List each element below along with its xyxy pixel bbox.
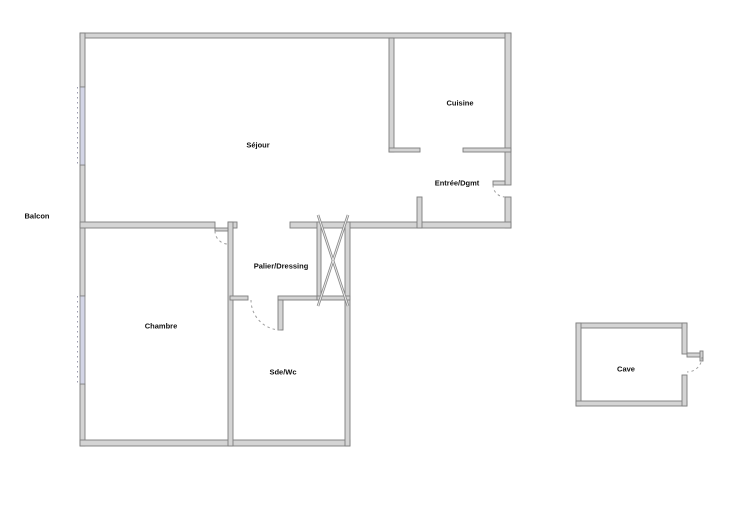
- left-wall-lower: [80, 384, 85, 446]
- shaft-cross-icon: [318, 215, 348, 306]
- room-label-chambre: Chambre: [145, 322, 178, 331]
- left-wall-upper: [80, 33, 85, 87]
- right-wall-upper: [505, 33, 511, 185]
- cave-right-wall-upper: [682, 323, 687, 354]
- left-wall-middle: [80, 165, 85, 296]
- doors: [215, 181, 505, 330]
- wall-palier-bottom-right: [278, 296, 317, 300]
- floor-plan: Balcon Séjour Cuisine Entrée/Dgmt Palier…: [0, 0, 753, 509]
- room-label-entree: Entrée/Dgmt: [435, 179, 480, 188]
- room-label-palier: Palier/Dressing: [254, 262, 309, 271]
- wall-cuisine-vertical: [389, 38, 394, 152]
- wall-sejour-chambre: [80, 222, 215, 228]
- floor-plan-canvas: [0, 0, 753, 509]
- cave-walls: [576, 323, 703, 406]
- wall-entree-stub: [417, 197, 422, 228]
- apartment-outer-walls: [80, 33, 511, 446]
- room-label-sde: Sde/Wc: [269, 368, 296, 377]
- cave-door-handle-tick-icon: [700, 351, 703, 361]
- shaft-left-wall: [317, 222, 321, 300]
- cave-bottom-wall: [576, 401, 687, 406]
- cave-top-wall: [576, 323, 687, 328]
- wall-cuisine-bottom-right: [463, 148, 511, 152]
- wall-sde-right: [345, 222, 350, 446]
- window-icon: [80, 296, 85, 384]
- entree-door-swing-icon: [493, 185, 505, 197]
- entree-door-leaf-icon: [493, 181, 505, 185]
- chambre-door-leaf-icon: [215, 228, 228, 231]
- cave-right-wall-lower: [682, 375, 687, 406]
- wall-cuisine-bottom-left: [389, 148, 420, 152]
- room-label-sejour: Séjour: [246, 141, 269, 150]
- window-icon: [80, 87, 85, 165]
- room-label-cuisine: Cuisine: [446, 99, 473, 108]
- wall-chambre-sde: [228, 222, 233, 446]
- sde-door-swing-icon: [251, 300, 281, 330]
- wall-sde-door-stub: [278, 300, 283, 330]
- bottom-wall: [80, 440, 350, 446]
- chambre-door-swing-icon: [215, 231, 228, 244]
- room-label-cave: Cave: [617, 365, 635, 374]
- cave-left-wall: [576, 323, 581, 406]
- room-label-balcon: Balcon: [24, 212, 49, 221]
- top-wall: [80, 33, 511, 38]
- wall-palier-bottom-left: [230, 296, 248, 300]
